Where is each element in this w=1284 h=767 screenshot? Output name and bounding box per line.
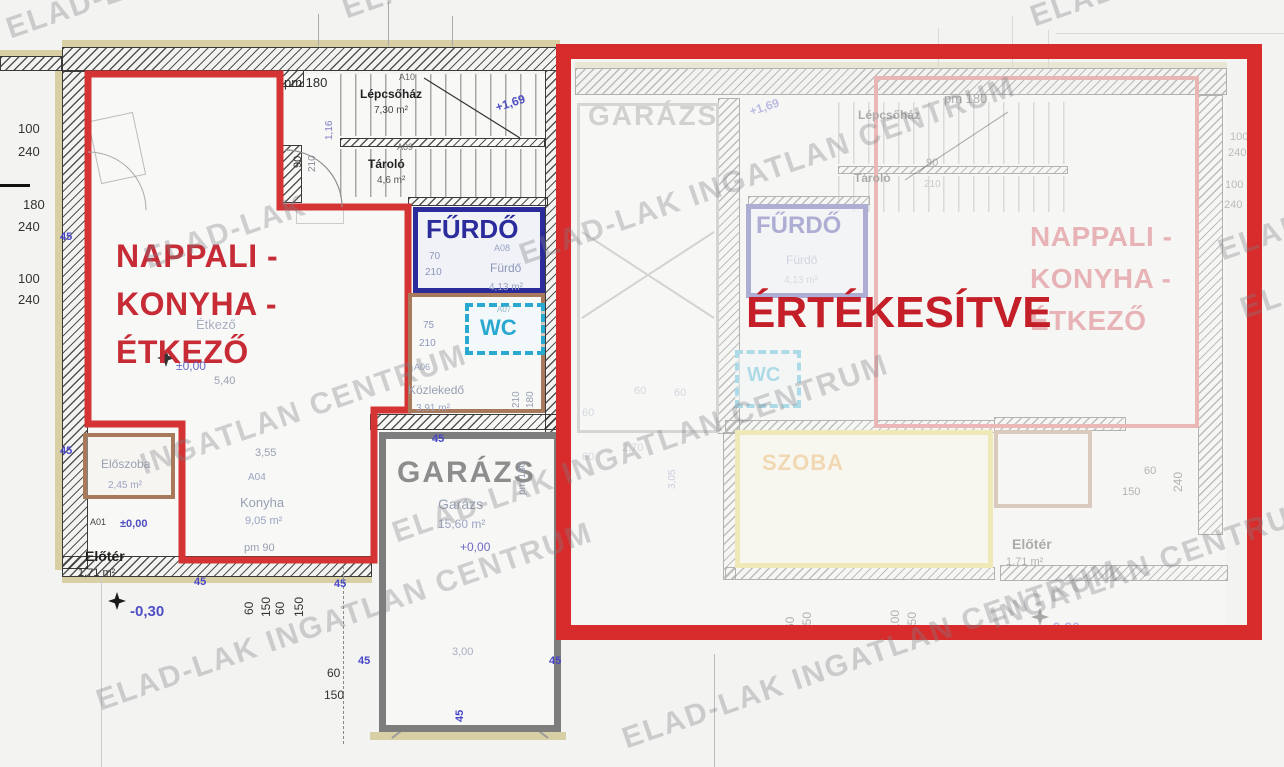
guide-line [1056,33,1284,34]
floor-plan: NAPPALI - KONYHA - ÉTKEZŐ FŰRDŐ WC GARÁZ… [0,0,1284,767]
sold-banner: ÉRTÉKESÍTVE [746,288,1052,338]
